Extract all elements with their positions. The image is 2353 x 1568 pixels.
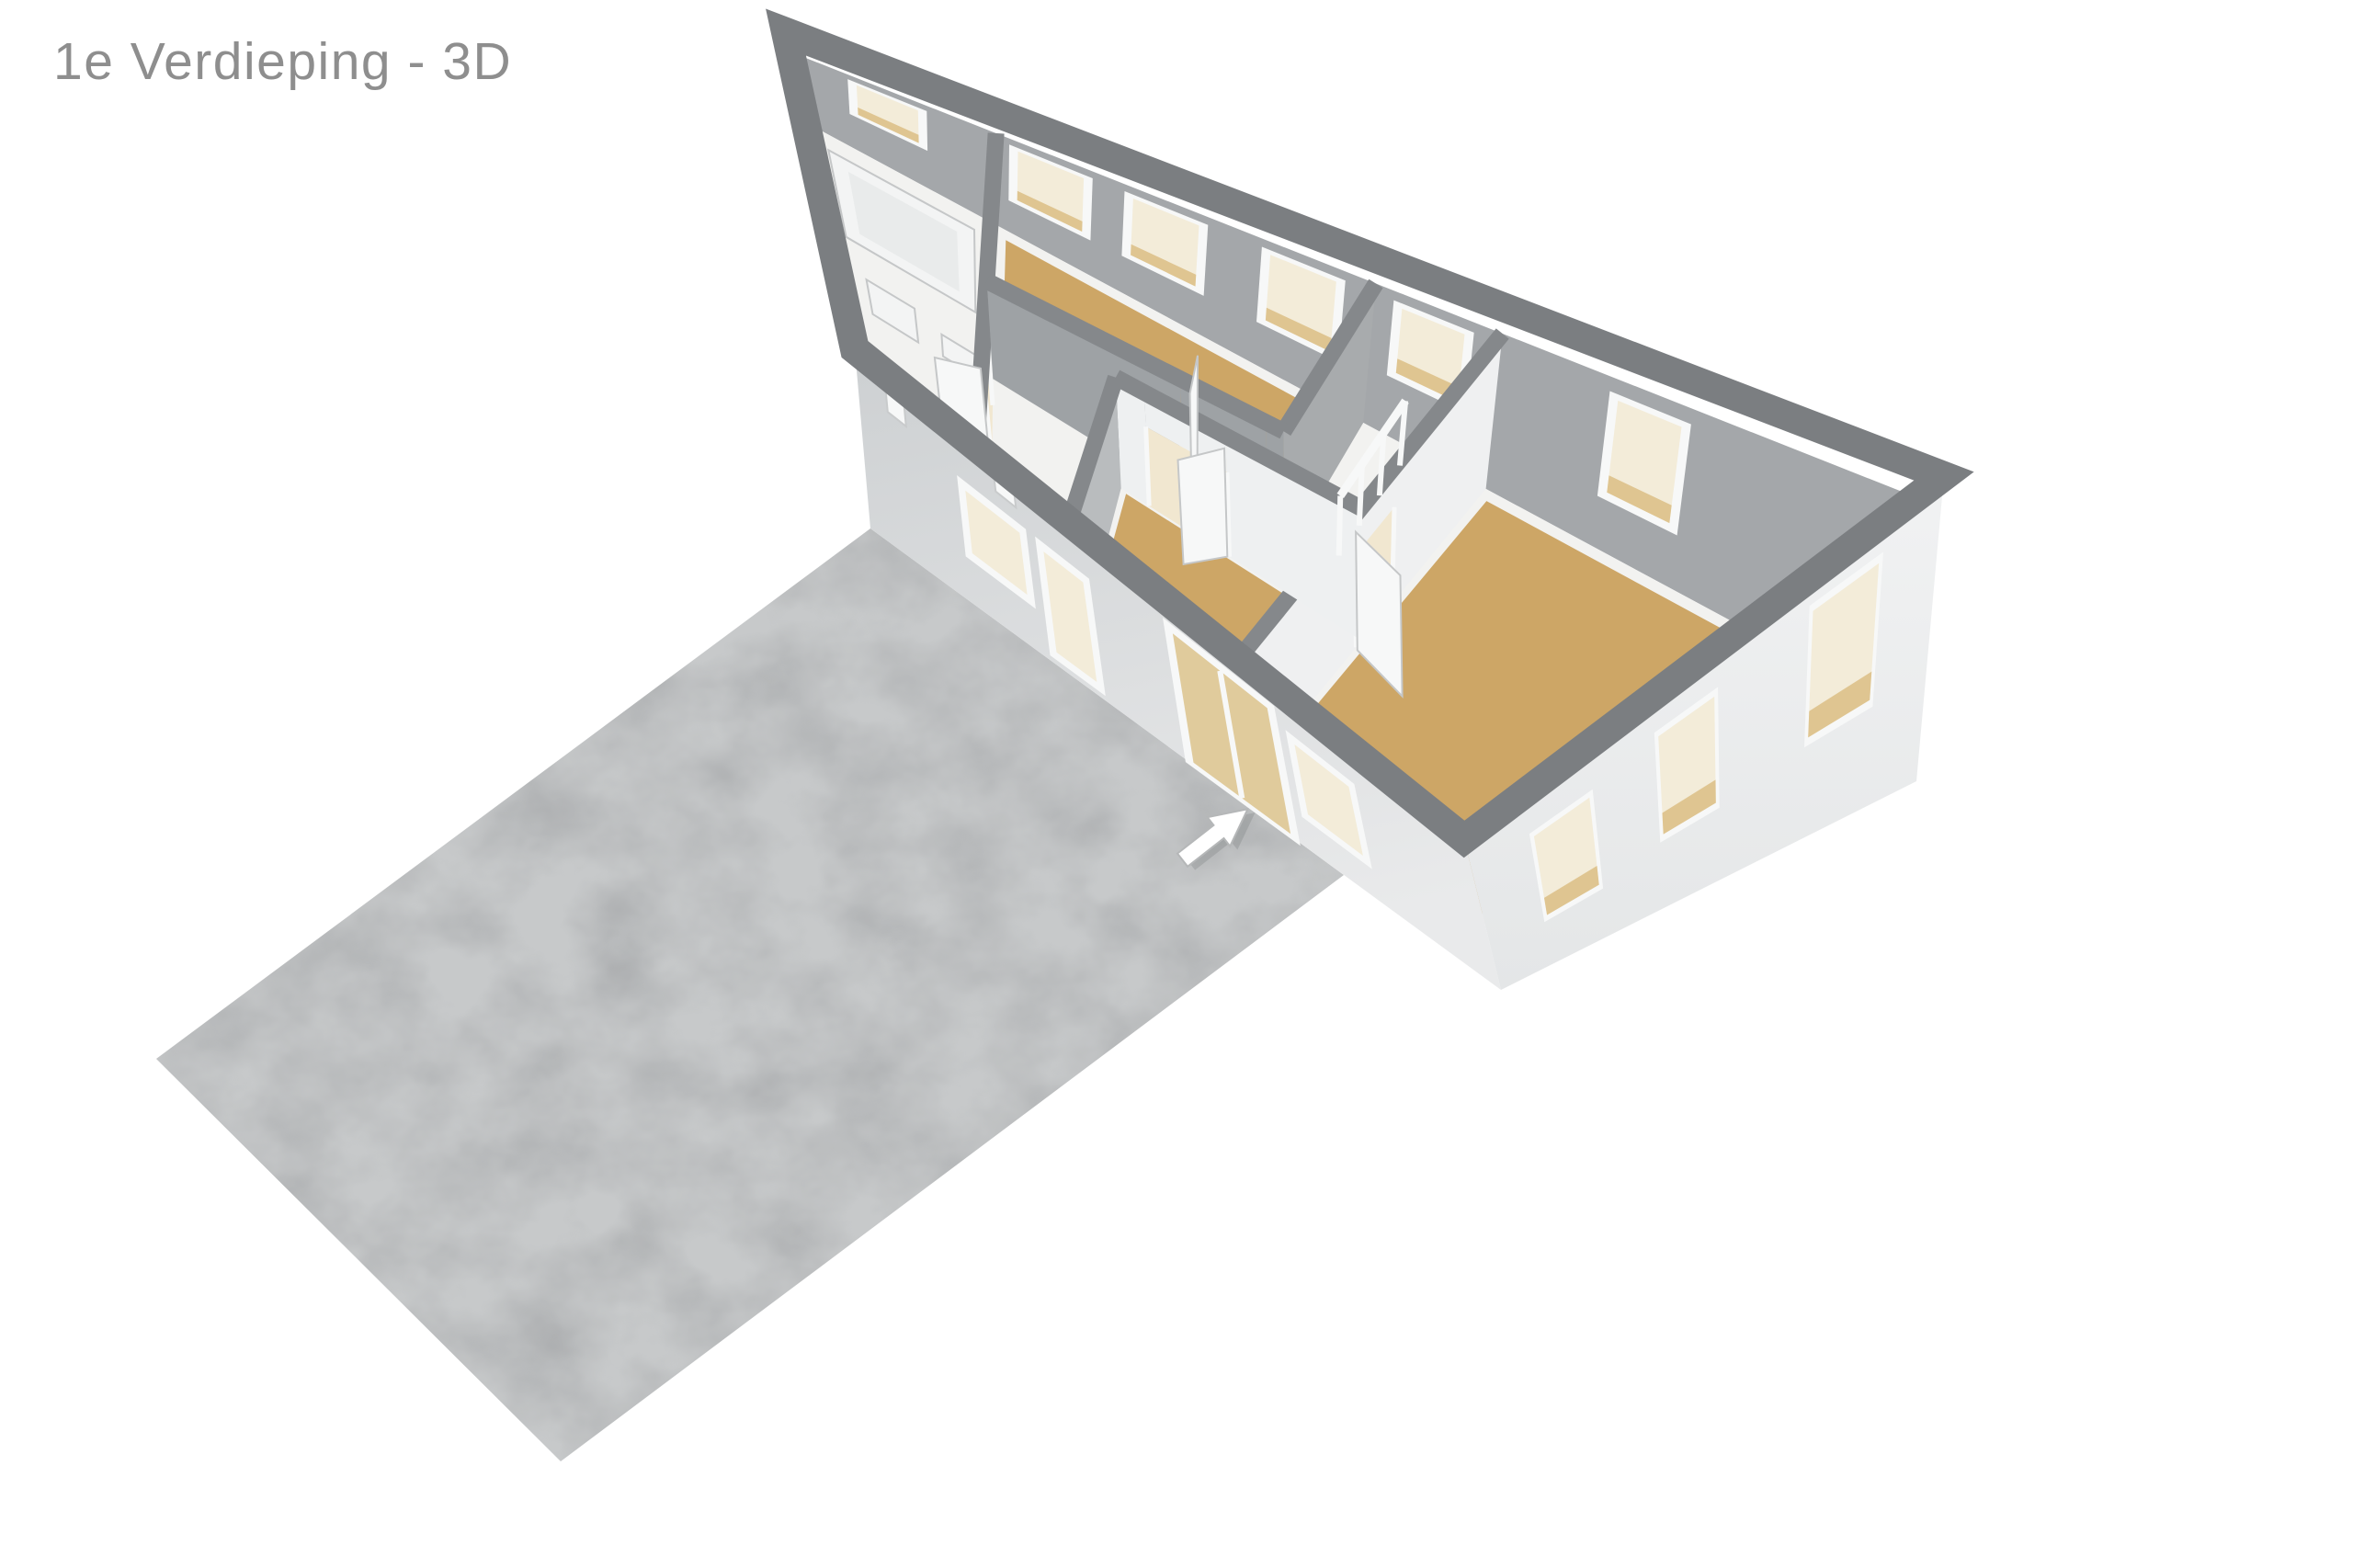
scene-root xyxy=(156,32,1944,1461)
railing-post xyxy=(1339,495,1341,555)
door-leaf-bedroom3-door xyxy=(1178,449,1228,564)
floorplan-page: 1e Verdieping - 3D xyxy=(0,0,2353,1568)
floorplan-3d-scene xyxy=(0,0,2353,1568)
